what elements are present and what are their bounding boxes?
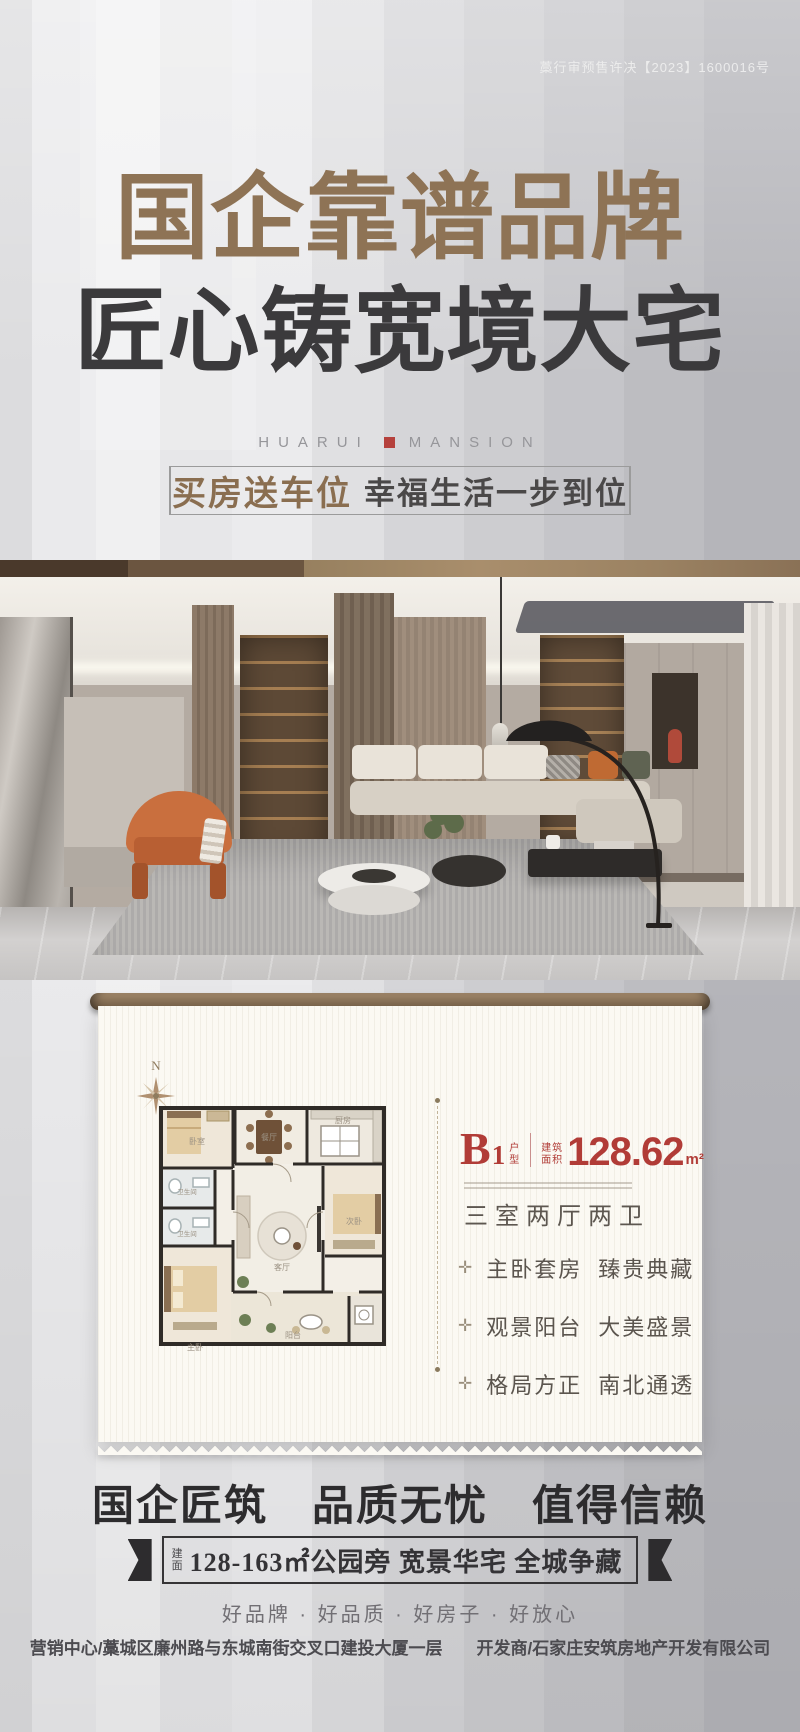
dashed-divider — [437, 1106, 438, 1364]
feature-tail: 大美盛景 — [598, 1310, 694, 1342]
compass-north-label: N — [132, 1058, 180, 1074]
feature-head: 观景阳台 — [486, 1310, 582, 1342]
banner-text: 128-163㎡公园旁 宽景华宅 全城争藏 — [190, 1542, 623, 1579]
banner-box: 建 面 128-163㎡公园旁 宽景华宅 全城争藏 — [162, 1536, 639, 1584]
unit-letter: B — [460, 1128, 491, 1169]
living-room-photo — [0, 577, 800, 980]
room-label-bedroom-top: 卧室 — [189, 1136, 205, 1146]
unit-type-label: 户 型 — [509, 1143, 520, 1166]
divider-dot — [435, 1098, 440, 1103]
paper-torn-edge — [98, 1442, 702, 1455]
area-banner: 建 面 128-163㎡公园旁 宽景华宅 全城争藏 — [0, 1536, 800, 1584]
floorplan-paper: N — [98, 1006, 702, 1442]
feature-bullet-icon: ✛ — [458, 1374, 474, 1394]
slogan-box: 买房送车位 幸福生活一步到位 — [169, 466, 631, 515]
room-label-kitchen: 厨房 — [335, 1115, 351, 1125]
feature-item: ✛ 主卧套房 臻贵典藏 — [458, 1252, 694, 1284]
feature-item: ✛ 格局方正 南北通透 — [458, 1368, 694, 1400]
area-label: 建筑 面积 — [541, 1143, 563, 1166]
feature-item: ✛ 观景阳台 大美盛景 — [458, 1310, 694, 1342]
area-label-top: 建筑 — [541, 1143, 563, 1155]
unit-type-char-bottom: 型 — [509, 1155, 520, 1167]
presale-permit-number: 藁行审预售许决【2023】1600016号 — [539, 57, 770, 76]
room-label-balcony: 阳台 — [285, 1330, 301, 1340]
area-label-bottom: 面积 — [541, 1155, 563, 1167]
main-title-line2: 匠心铸宽境大宅 — [0, 282, 800, 383]
divider-dot — [435, 1367, 440, 1372]
banner-flag-right — [648, 1539, 672, 1581]
room-label-living: 客厅 — [274, 1262, 290, 1272]
unit-divider-line — [530, 1133, 531, 1167]
feature-list: ✛ 主卧套房 臻贵典藏 ✛ 观景阳台 大美盛景 ✛ 格局方正 南北通透 — [458, 1252, 694, 1400]
unit-type-char-top: 户 — [509, 1143, 520, 1155]
feature-tail: 臻贵典藏 — [598, 1252, 694, 1284]
feature-head: 格局方正 — [486, 1368, 582, 1400]
bottom-headline: 国企匠筑 品质无忧 值得信赖 — [0, 1472, 800, 1533]
lamp-base — [646, 923, 672, 928]
banner-prefix: 建 面 — [172, 1548, 183, 1572]
banner-prefix-bottom: 面 — [172, 1560, 183, 1572]
feature-head: 主卧套房 — [486, 1252, 582, 1284]
feature-bullet-icon: ✛ — [458, 1316, 474, 1336]
layout-description: 三室两厅两卫 — [464, 1196, 650, 1231]
brand-word-left: HUARUI — [258, 434, 370, 451]
fine-print-placeholder — [464, 1182, 632, 1189]
slogan-text: 幸福生活一步到位 — [364, 468, 628, 513]
brand-name-row: HUARUI MANSION — [0, 434, 800, 451]
slogan-highlight: 买房送车位 — [172, 466, 352, 515]
banner-prefix-top: 建 — [172, 1548, 183, 1560]
tagline: 好品牌 · 好品质 · 好房子 · 好放心 — [0, 1598, 800, 1627]
area-value: 128.62 — [567, 1135, 683, 1169]
footer-info: 营销中心/藁城区廉州路与东城南街交叉口建投大厦一层 开发商/石家庄安筑房地产开发… — [0, 1634, 800, 1659]
unit-number: 1 — [492, 1142, 506, 1169]
room-label-bath-upper: 卫生间 — [177, 1187, 197, 1196]
wood-accent-strip — [0, 560, 800, 577]
lamp-arc — [548, 737, 659, 925]
feature-bullet-icon: ✛ — [458, 1258, 474, 1278]
unit-info-row: B 1 户 型 建筑 面积 128.62 m² — [460, 1128, 704, 1169]
room-label-dining: 餐厅 — [261, 1133, 277, 1142]
floorplan-drawing: 卧室 卫生间 卫生间 主卧 餐厅 厨房 客厅 次卧 阳台 — [153, 1100, 392, 1361]
lamp-dome-shade — [506, 721, 592, 741]
room-label-master: 主卧 — [187, 1342, 203, 1352]
red-seal-icon — [384, 437, 395, 448]
brand-word-right: MANSION — [409, 434, 542, 451]
footer-sales-center: 营销中心/藁城区廉州路与东城南街交叉口建投大厦一层 — [30, 1634, 443, 1659]
real-estate-poster: 藁行审预售许决【2023】1600016号 国企靠谱品牌 匠心铸宽境大宅 HUA… — [0, 0, 800, 1732]
feature-tail: 南北通透 — [598, 1368, 694, 1400]
footer-developer: 开发商/石家庄安筑房地产开发有限公司 — [477, 1634, 771, 1659]
banner-flag-left — [128, 1539, 152, 1581]
main-title-line1: 国企靠谱品牌 — [0, 168, 800, 271]
arc-floor-lamp — [0, 577, 800, 980]
room-label-bedroom-right: 次卧 — [346, 1216, 362, 1226]
room-label-bath-lower: 卫生间 — [177, 1229, 197, 1238]
area-unit: m² — [686, 1151, 704, 1168]
